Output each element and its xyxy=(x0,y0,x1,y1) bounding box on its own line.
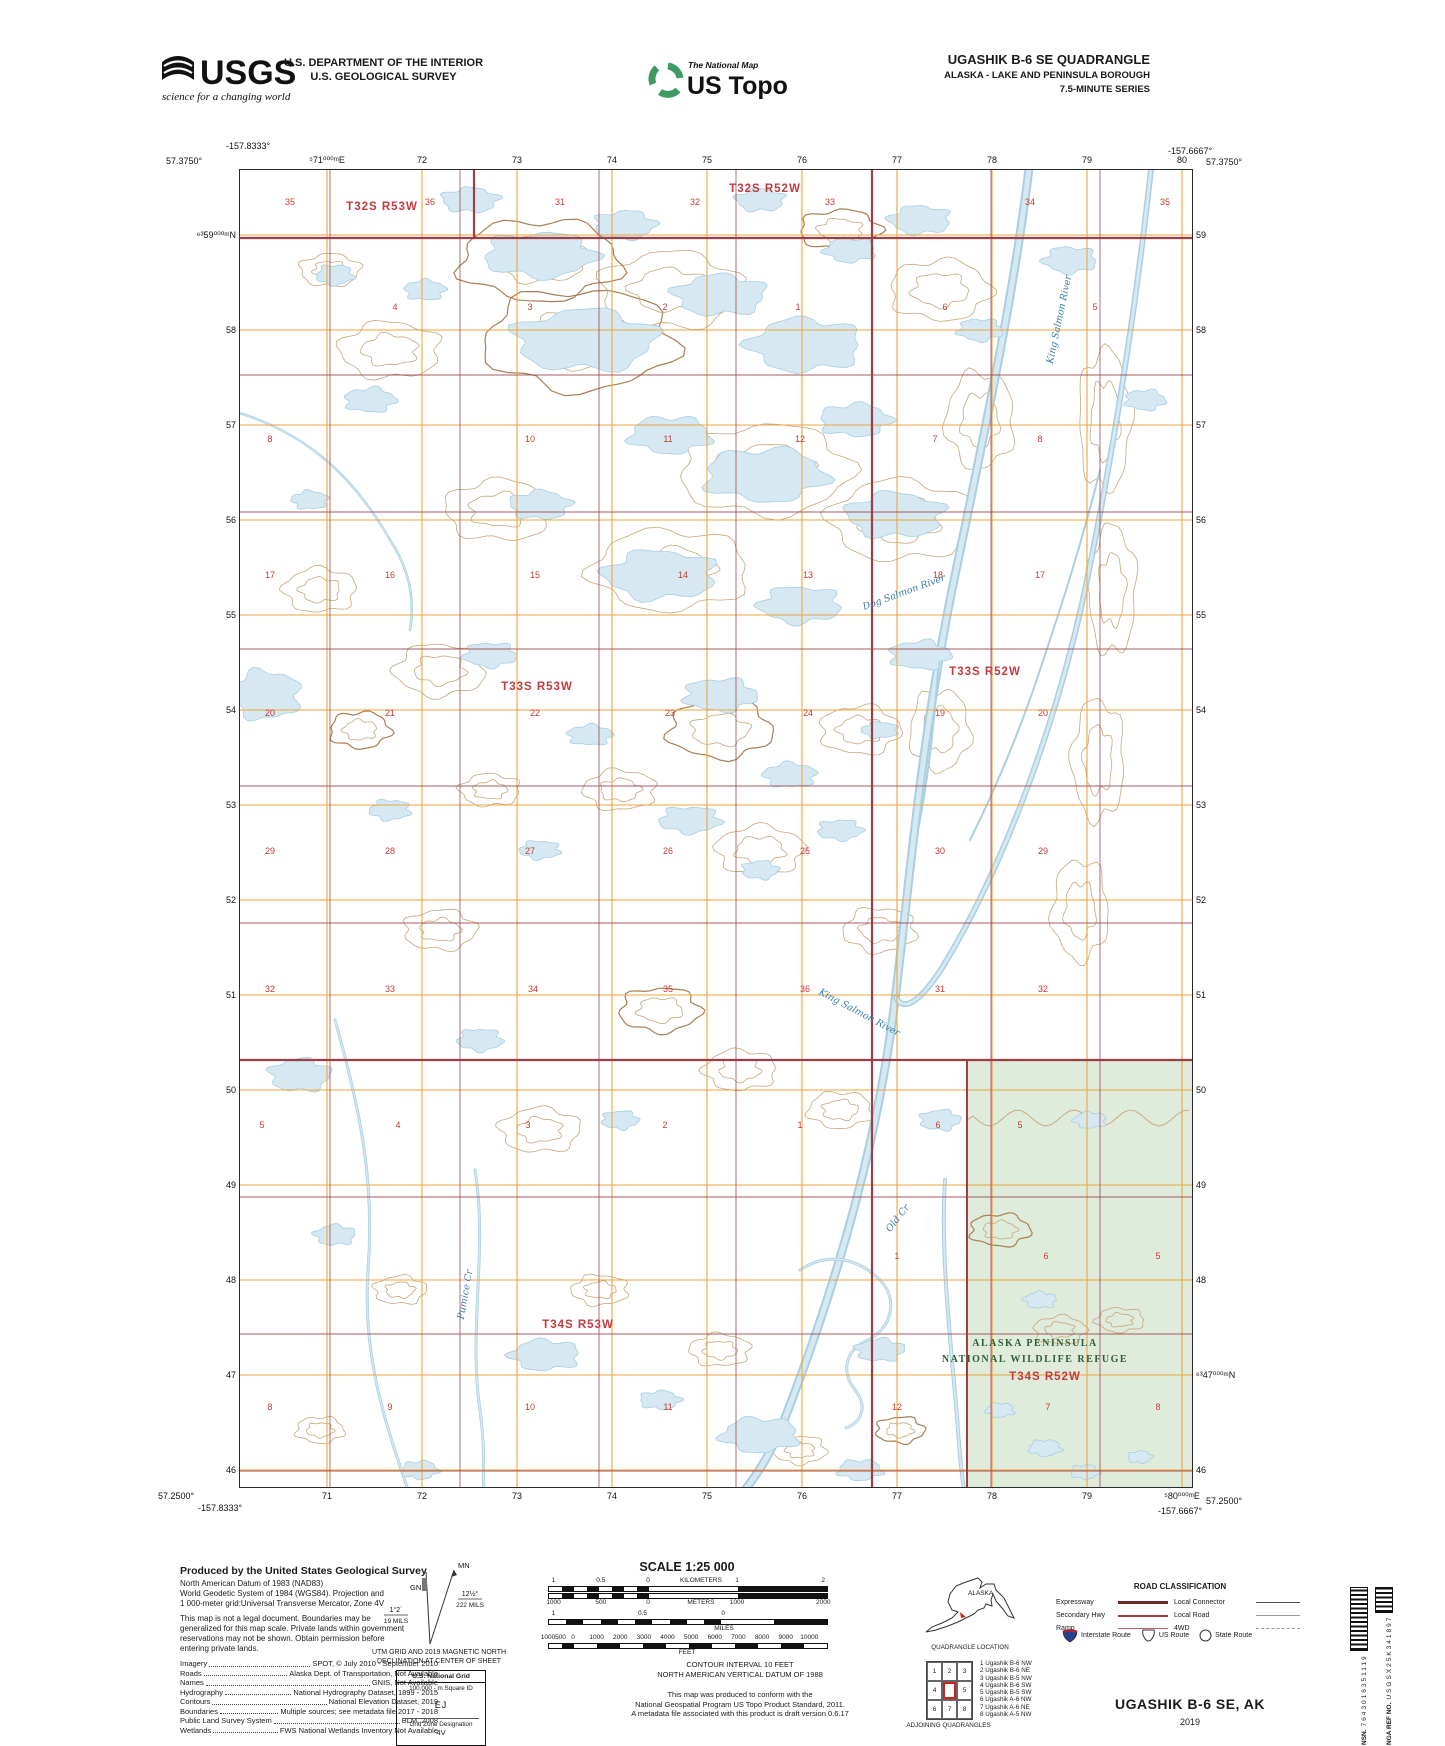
data-source-name: Hydrography xyxy=(180,1688,223,1698)
scale-bar-segment xyxy=(687,1620,704,1624)
leader-dots xyxy=(212,1697,326,1705)
grid-northing-label-right: 52 xyxy=(1196,895,1206,905)
map-corner-coordinate: -157.6667° xyxy=(1168,146,1212,156)
road-class-line-sample xyxy=(1256,1615,1300,1616)
alaska-outline-map: ALASKA xyxy=(922,1570,1018,1640)
section-number: 5 xyxy=(1017,1120,1022,1130)
usng-square-id: EJ xyxy=(397,1700,485,1710)
grid-easting-label-top: 75 xyxy=(702,155,712,165)
road-class-label: Secondary Hwy xyxy=(1056,1612,1112,1619)
magnetic-north-arrow xyxy=(451,1570,457,1577)
data-source-name: Boundaries xyxy=(180,1707,218,1717)
grid-easting-label-bottom: ⁵80⁰⁰⁰ᵐE xyxy=(1164,1491,1200,1502)
section-number: 9 xyxy=(387,1402,392,1412)
quad-series: 7.5-MINUTE SERIES xyxy=(760,84,1150,95)
scale-bar-segment xyxy=(712,1644,735,1648)
scale-label-feet: 10000 xyxy=(800,1634,818,1641)
township-range-label: T33S R53W xyxy=(501,681,573,693)
grid-easting-label-bottom: 74 xyxy=(607,1491,617,1501)
map-corner-coordinate: 57.3750° xyxy=(166,156,202,166)
section-number: 12 xyxy=(892,1402,902,1412)
declination-caption: UTM GRID AND 2019 MAGNETIC NORTH DECLINA… xyxy=(364,1648,514,1666)
scale-bar-segment xyxy=(637,1594,650,1598)
scale-bar-segment xyxy=(781,1644,804,1648)
barcode-stripes xyxy=(1375,1587,1393,1613)
township-range-label: T34S R52W xyxy=(1009,1371,1081,1383)
scale-label-miles: 1 xyxy=(552,1610,556,1617)
section-number: 34 xyxy=(1025,197,1035,207)
refuge-name-label: ALASKA PENINSULA xyxy=(972,1338,1097,1349)
contour-interval-note: CONTOUR INTERVAL 10 FEET NORTH AMERICAN … xyxy=(600,1660,880,1679)
department-line2: U.S. GEOLOGICAL SURVEY xyxy=(284,70,483,84)
adjoining-quad-name: 2 Ugashik B-6 NE xyxy=(980,1667,1100,1674)
scale-bar-segment xyxy=(635,1620,652,1624)
section-number: 5 xyxy=(1092,302,1097,312)
grid-northing-label-right: 49 xyxy=(1196,1180,1206,1190)
grid-easting-label-top: 78 xyxy=(987,155,997,165)
scale-label-miles: 0.5 xyxy=(638,1610,647,1617)
road-class-line-sample xyxy=(1256,1602,1300,1603)
scale-label-meters: 500 xyxy=(595,1599,606,1606)
scale-label-kilometers: 1 xyxy=(552,1577,556,1584)
scale-bar-segment xyxy=(774,1620,827,1624)
scale-bar-segment xyxy=(599,1587,612,1591)
scale-bar-segment xyxy=(758,1644,781,1648)
section-number: 1 xyxy=(795,302,800,312)
barcode-nsn-number: 7643016351119 xyxy=(1361,1654,1368,1726)
scale-title: SCALE 1:25 000 xyxy=(548,1560,826,1574)
grid-northing-label-left: 46 xyxy=(160,1465,236,1475)
data-source-name: Roads xyxy=(180,1669,202,1679)
usng-title: U.S. National Grid xyxy=(397,1671,485,1683)
section-number: 8 xyxy=(1155,1402,1160,1412)
section-number: 35 xyxy=(285,197,295,207)
scale-bar-segment xyxy=(549,1620,566,1624)
grid-northing-label-right: ⁶³47⁰⁰⁰ᵐN xyxy=(1196,1370,1235,1381)
map-corner-coordinate: 57.3750° xyxy=(1206,157,1242,167)
section-number: 21 xyxy=(385,708,395,718)
section-number: 2 xyxy=(662,302,667,312)
grid-northing-label-left: 52 xyxy=(160,895,236,905)
scale-bar-segment xyxy=(574,1644,597,1648)
usng-zone-label: Grid Zone Designation xyxy=(397,1721,485,1728)
map-corner-coordinate: -157.6667° xyxy=(1158,1506,1202,1516)
section-number: 25 xyxy=(800,846,810,856)
scale-label-meters: METERS xyxy=(687,1599,714,1606)
state-route-circle-icon xyxy=(1199,1629,1212,1642)
section-number: 28 xyxy=(385,846,395,856)
route-shield-item: State Route xyxy=(1199,1629,1252,1642)
section-number: 6 xyxy=(942,302,947,312)
barcode-nga-row: NGA REF NO. USGSX25K341897 xyxy=(1373,1587,1393,1745)
grid-northing-label-left: 58 xyxy=(160,325,236,335)
product-standard-line: This map was produced to conform with th… xyxy=(580,1690,900,1700)
leader-dots xyxy=(213,1726,278,1734)
grid-northing-label-right: 55 xyxy=(1196,610,1206,620)
section-number: 35 xyxy=(1160,197,1170,207)
section-number: 36 xyxy=(425,197,435,207)
leader-dots xyxy=(220,1707,278,1715)
section-number: 15 xyxy=(530,570,540,580)
section-number: 12 xyxy=(795,434,805,444)
section-number: 26 xyxy=(663,846,673,856)
section-number: 11 xyxy=(663,434,672,444)
gn-declination-mils: 19 MILS xyxy=(384,1618,409,1625)
scale-bar-segment xyxy=(583,1620,600,1624)
grid-easting-label-bottom: 76 xyxy=(797,1491,807,1501)
scale-label-meters: 1000 xyxy=(730,1599,744,1606)
declination-caption-line1: UTM GRID AND 2019 MAGNETIC NORTH xyxy=(364,1648,514,1657)
route-shield-legend: Interstate RouteUS RouteState Route xyxy=(1062,1628,1322,1643)
map-body: 3536313233343543216581011127817161514131… xyxy=(240,170,1192,1487)
scale-bar-segment xyxy=(574,1594,587,1598)
scale-bar-segment xyxy=(624,1594,637,1598)
scale-bar-segment xyxy=(620,1644,643,1648)
data-source-name: Wetlands xyxy=(180,1726,211,1736)
scale-bar-segment xyxy=(612,1594,625,1598)
scale-bar-segment xyxy=(562,1587,575,1591)
grid-north-symbol xyxy=(422,1578,427,1591)
alaska-label: ALASKA xyxy=(968,1590,994,1597)
scale-label-kilometers: 1 xyxy=(735,1577,739,1584)
road-class-line-sample xyxy=(1118,1615,1168,1617)
section-number: 11 xyxy=(663,1402,672,1412)
grid-northing-label-right: 53 xyxy=(1196,800,1206,810)
section-number: 19 xyxy=(935,708,945,718)
usgs-tagline: science for a changing world xyxy=(162,91,291,103)
scale-label-feet: 0 xyxy=(571,1634,575,1641)
scale-bar-segment xyxy=(804,1644,827,1648)
section-number: 1 xyxy=(797,1120,802,1130)
grid-northing-label-left: 47 xyxy=(160,1370,236,1380)
section-number: 7 xyxy=(1045,1402,1050,1412)
section-number: 17 xyxy=(265,570,275,580)
quad-title: UGASHIK B-6 SE QUADRANGLE xyxy=(760,52,1150,67)
route-shield-item: Interstate Route xyxy=(1062,1628,1131,1643)
section-number: 33 xyxy=(385,984,395,994)
scale-label-feet: 8000 xyxy=(755,1634,769,1641)
scale-caption-miles: MILES xyxy=(714,1625,734,1632)
ustopo-brand: The National Map xyxy=(688,60,758,70)
section-number: 8 xyxy=(267,1402,272,1412)
adjoining-quadrangles-caption: ADJOINING QUADRANGLES xyxy=(886,1722,1011,1729)
grid-easting-label-bottom: 72 xyxy=(417,1491,427,1501)
section-number: 27 xyxy=(525,846,535,856)
scale-label-kilometers: KILOMETERS xyxy=(680,1577,722,1584)
scale-bar-segment xyxy=(549,1587,562,1591)
scale-bar-segment xyxy=(624,1587,637,1591)
grid-northing-label-right: 51 xyxy=(1196,990,1206,1000)
township-range-label: T32S R53W xyxy=(346,201,418,213)
adjoining-grid-cell: 4 xyxy=(927,1681,942,1700)
scale-bar-segment xyxy=(599,1594,612,1598)
scale-bar-segment xyxy=(549,1594,562,1598)
scale-bar-segment xyxy=(649,1594,738,1598)
department-heading: U.S. DEPARTMENT OF THE INTERIOR U.S. GEO… xyxy=(284,56,483,84)
road-class-line-sample xyxy=(1118,1601,1168,1604)
section-number: 33 xyxy=(825,197,835,207)
section-number: 7 xyxy=(932,434,937,444)
grid-northing-label-right: 58 xyxy=(1196,325,1206,335)
grid-easting-label-top: 77 xyxy=(892,155,902,165)
barcode-nsn-row: NSN. 7643016351119 xyxy=(1348,1587,1368,1745)
scale-label-kilometers: 0.5 xyxy=(596,1577,605,1584)
grid-easting-label-bottom: 71 xyxy=(322,1491,332,1501)
scale-label-feet: 9000 xyxy=(778,1634,792,1641)
road-class-label: Expressway xyxy=(1056,1599,1112,1606)
product-standard-line: National Geospatial Program US Topo Prod… xyxy=(580,1700,900,1710)
grid-northing-label-right: 50 xyxy=(1196,1085,1206,1095)
road-class-label: Local Road xyxy=(1174,1612,1252,1619)
adjoining-grid-cell: 2 xyxy=(942,1662,957,1681)
section-number: 17 xyxy=(1035,570,1045,580)
section-number: 5 xyxy=(259,1120,264,1130)
ustopo-logo-icon xyxy=(652,66,680,94)
road-class-row: ExpresswayLocal Connector xyxy=(1056,1596,1306,1609)
scale-bar-segment xyxy=(612,1587,625,1591)
quad-title-block: UGASHIK B-6 SE QUADRANGLE ALASKA - LAKE … xyxy=(760,52,1150,95)
grid-northing-label-right: 48 xyxy=(1196,1275,1206,1285)
sheet-title: UGASHIK B-6 SE, AK xyxy=(1060,1696,1320,1712)
grid-northing-label-right: 57 xyxy=(1196,420,1206,430)
section-number: 8 xyxy=(267,434,272,444)
grid-easting-label-top: 80 xyxy=(1177,155,1187,165)
barcode-nsn-label: NSN. xyxy=(1361,1729,1368,1745)
scale-bar-segment xyxy=(689,1644,712,1648)
mn-label: MN xyxy=(458,1561,470,1570)
adjoining-quad-name: 4 Ugashik B-6 SW xyxy=(980,1682,1100,1689)
road-classification-header: ROAD CLASSIFICATION xyxy=(1100,1582,1260,1591)
section-number: 29 xyxy=(265,846,275,856)
section-number: 31 xyxy=(935,984,945,994)
leader-dots xyxy=(274,1716,400,1724)
quad-subtitle: ALASKA - LAKE AND PENINSULA BOROUGH xyxy=(760,70,1150,81)
section-number: 4 xyxy=(395,1120,400,1130)
grid-northing-label-left: 57 xyxy=(160,420,236,430)
grid-northing-label-left: ⁶³59⁰⁰⁰ᵐN xyxy=(160,230,236,241)
adjoining-quad-name: 3 Ugashik B-5 NW xyxy=(980,1675,1100,1682)
scale-bar-segment xyxy=(601,1620,618,1624)
scale-bar-segment xyxy=(549,1644,562,1648)
data-source-name: Contours xyxy=(180,1697,210,1707)
scale-label-feet: 1000 xyxy=(589,1634,603,1641)
grid-northing-label-left: 49 xyxy=(160,1180,236,1190)
section-number: 34 xyxy=(528,984,538,994)
scale-label-kilometers: 0 xyxy=(646,1577,650,1584)
grid-easting-label-top: 73 xyxy=(512,155,522,165)
scale-label-feet: 7000 xyxy=(731,1634,745,1641)
scale-bar-segment xyxy=(721,1620,774,1624)
grid-northing-label-right: 59 xyxy=(1196,230,1206,240)
contour-note-line2: NORTH AMERICAN VERTICAL DATUM OF 1988 xyxy=(600,1670,880,1680)
adjoining-grid-cell: 6 xyxy=(927,1700,942,1719)
scale-bar-segment xyxy=(566,1620,583,1624)
usng-box: U.S. National Grid 100,000 - m Square ID… xyxy=(396,1670,486,1746)
township-range-label: T34S R53W xyxy=(542,1319,614,1331)
scale-bar-segment xyxy=(618,1620,635,1624)
barcode-nga-label: NGA REF NO. xyxy=(1386,1703,1393,1745)
section-number: 16 xyxy=(385,570,395,580)
scale-label-miles: 0 xyxy=(721,1610,725,1617)
mn-declination-value: 12½° xyxy=(462,1590,479,1598)
section-number: 32 xyxy=(265,984,275,994)
scale-label-meters: 2000 xyxy=(816,1599,830,1606)
barcode: NSN. 7643016351119 NGA REF NO. USGSX25K3… xyxy=(1348,1587,1396,1745)
grid-easting-label-bottom: 73 xyxy=(512,1491,522,1501)
scale-bar-segment xyxy=(587,1594,600,1598)
section-number: 20 xyxy=(1038,708,1048,718)
scale-bar-segment xyxy=(738,1594,827,1598)
grid-easting-label-top: 76 xyxy=(797,155,807,165)
section-number: 23 xyxy=(665,708,675,718)
scale-label-feet: 4000 xyxy=(660,1634,674,1641)
grid-northing-label-left: 55 xyxy=(160,610,236,620)
leader-dots xyxy=(206,1678,370,1686)
map-corner-coordinate: 57.2500° xyxy=(158,1491,194,1501)
scale-label-feet: 2000 xyxy=(613,1634,627,1641)
usng-zone: 4V xyxy=(397,1728,485,1737)
scale-label-kilometers: 2 xyxy=(821,1577,825,1584)
township-range-label: T33S R52W xyxy=(949,666,1021,678)
section-number: 4 xyxy=(392,302,397,312)
road-class-label: Local Connector xyxy=(1174,1599,1252,1606)
department-line1: U.S. DEPARTMENT OF THE INTERIOR xyxy=(284,56,483,70)
section-number: 14 xyxy=(678,570,688,580)
map-corner-coordinate: -157.8333° xyxy=(226,141,270,151)
scale-bar-segment xyxy=(670,1620,687,1624)
scale-bar-segment xyxy=(574,1587,587,1591)
route-shield-label: State Route xyxy=(1215,1632,1252,1639)
product-standard-line: A metadata file associated with this pro… xyxy=(580,1709,900,1719)
route-shield-label: US Route xyxy=(1159,1632,1189,1639)
scale-bar-segment xyxy=(562,1594,575,1598)
section-number: 29 xyxy=(1038,846,1048,856)
route-shield-item: US Route xyxy=(1141,1629,1189,1642)
section-number: 6 xyxy=(935,1120,940,1130)
grid-easting-label-top: 72 xyxy=(417,155,427,165)
section-number: 32 xyxy=(690,197,700,207)
barcode-nga-number: USGSX25K341897 xyxy=(1386,1616,1393,1700)
grid-northing-label-left: 50 xyxy=(160,1085,236,1095)
data-source-name: Imagery xyxy=(180,1659,207,1669)
scale-caption-feet: FEET xyxy=(679,1649,696,1656)
adjoining-grid-cell: 3 xyxy=(957,1662,972,1681)
grid-northing-label-left: 54 xyxy=(160,705,236,715)
section-number: 22 xyxy=(530,708,540,718)
grid-northing-label-left: 53 xyxy=(160,800,236,810)
section-number: 30 xyxy=(935,846,945,856)
sheet-year: 2019 xyxy=(1060,1717,1320,1727)
section-number: 36 xyxy=(800,984,810,994)
scale-bars: 10.50KILOMETERS1210005000METERS100020001… xyxy=(548,1577,826,1659)
data-source-name: Names xyxy=(180,1678,204,1688)
adjoining-quad-name: 1 Ugashik B-6 NW xyxy=(980,1660,1100,1667)
scale-bar-segment xyxy=(666,1644,689,1648)
grid-easting-label-top: 74 xyxy=(607,155,617,165)
grid-northing-label-right: 54 xyxy=(1196,705,1206,715)
grid-northing-label-left: 56 xyxy=(160,515,236,525)
scale-bar-segment xyxy=(562,1644,575,1648)
usgs-topo-map-sheet: USGS science for a changing world U.S. D… xyxy=(0,0,1445,1746)
adjoining-grid-current-cell xyxy=(942,1681,957,1700)
grid-easting-label-bottom: 75 xyxy=(702,1491,712,1501)
map-canvas: 3536313233343543216581011127817161514131… xyxy=(240,170,1192,1487)
map-corner-coordinate: 57.2500° xyxy=(1206,1496,1242,1506)
scale-bar-segment xyxy=(637,1587,650,1591)
adjoining-grid-cell: 1 xyxy=(927,1662,942,1681)
scale-bar-segment xyxy=(704,1620,721,1624)
grid-northing-label-left: 51 xyxy=(160,990,236,1000)
scale-bar xyxy=(548,1619,828,1625)
adjoining-grid-cell: 7 xyxy=(942,1700,957,1719)
adjoining-quadrangle-grid: 12345678 xyxy=(926,1661,973,1720)
scale-bar-segment xyxy=(587,1587,600,1591)
scale-label-meters: 1000 xyxy=(546,1599,560,1606)
usgs-wave-icon xyxy=(162,56,194,80)
scale-bar-segment xyxy=(649,1587,738,1591)
scale-label-feet: 5000 xyxy=(684,1634,698,1641)
gn-label: GN xyxy=(410,1583,421,1592)
section-number: 20 xyxy=(265,708,275,718)
scale-label-feet: 6000 xyxy=(708,1634,722,1641)
scale-label-feet: 1000 xyxy=(541,1634,555,1641)
barcode-stripes xyxy=(1350,1587,1368,1651)
data-source-name: Public Land Survey System xyxy=(180,1716,272,1726)
adjoining-grid-cell: 5 xyxy=(957,1681,972,1700)
grid-northing-label-right: 46 xyxy=(1196,1465,1206,1475)
road-class-row: Secondary HwyLocal Road xyxy=(1056,1609,1306,1622)
section-number: 3 xyxy=(525,1120,530,1130)
section-number: 6 xyxy=(1043,1251,1048,1261)
grid-easting-label-top: 79 xyxy=(1082,155,1092,165)
grid-northing-label-right: 56 xyxy=(1196,515,1206,525)
grid-easting-label-bottom: 79 xyxy=(1082,1491,1092,1501)
scale-label-meters: 0 xyxy=(646,1599,650,1606)
grid-easting-label-bottom: 78 xyxy=(987,1491,997,1501)
leader-dots xyxy=(225,1688,291,1696)
product-standard-note: This map was produced to conform with th… xyxy=(580,1690,900,1719)
scale-label-feet: 500 xyxy=(555,1634,566,1641)
section-number: 24 xyxy=(803,708,813,718)
section-number: 3 xyxy=(527,302,532,312)
map-corner-coordinate: -157.8333° xyxy=(198,1503,242,1513)
grid-northing-label-left: 48 xyxy=(160,1275,236,1285)
declination-diagram: MN GN 12½° 222 MILS 1°2´ 19 MILS xyxy=(380,1556,496,1648)
section-number: 8 xyxy=(1037,434,1042,444)
sheet-title-block: UGASHIK B-6 SE, AK 2019 xyxy=(1060,1696,1320,1727)
usng-square-label: 100,000 - m Square ID xyxy=(397,1685,485,1692)
refuge-name-label: NATIONAL WILDLIFE REFUGE xyxy=(942,1354,1128,1365)
section-number: 10 xyxy=(525,434,535,444)
scale-bar-segment xyxy=(735,1644,758,1648)
grid-easting-label-bottom: 77 xyxy=(892,1491,902,1501)
us-route-shield-icon xyxy=(1141,1629,1156,1642)
section-number: 2 xyxy=(662,1120,667,1130)
quadrangle-location-caption: QUADRANGLE LOCATION xyxy=(905,1644,1035,1651)
section-number: 32 xyxy=(1038,984,1048,994)
section-number: 35 xyxy=(663,984,673,994)
section-number: 13 xyxy=(803,570,813,580)
grid-easting-label-top: ⁵71⁰⁰⁰ᵐE xyxy=(309,155,345,166)
adjoining-grid-cell: 8 xyxy=(957,1700,972,1719)
mn-declination-mils: 222 MILS xyxy=(456,1602,484,1609)
interstate-shield-icon xyxy=(1062,1628,1078,1643)
scale-bar-segment xyxy=(597,1644,620,1648)
contour-note-line1: CONTOUR INTERVAL 10 FEET xyxy=(600,1660,880,1670)
scale-label-feet: 3000 xyxy=(637,1634,651,1641)
declination-caption-line2: DECLINATION AT CENTER OF SHEET xyxy=(364,1657,514,1666)
section-number: 31 xyxy=(555,197,565,207)
